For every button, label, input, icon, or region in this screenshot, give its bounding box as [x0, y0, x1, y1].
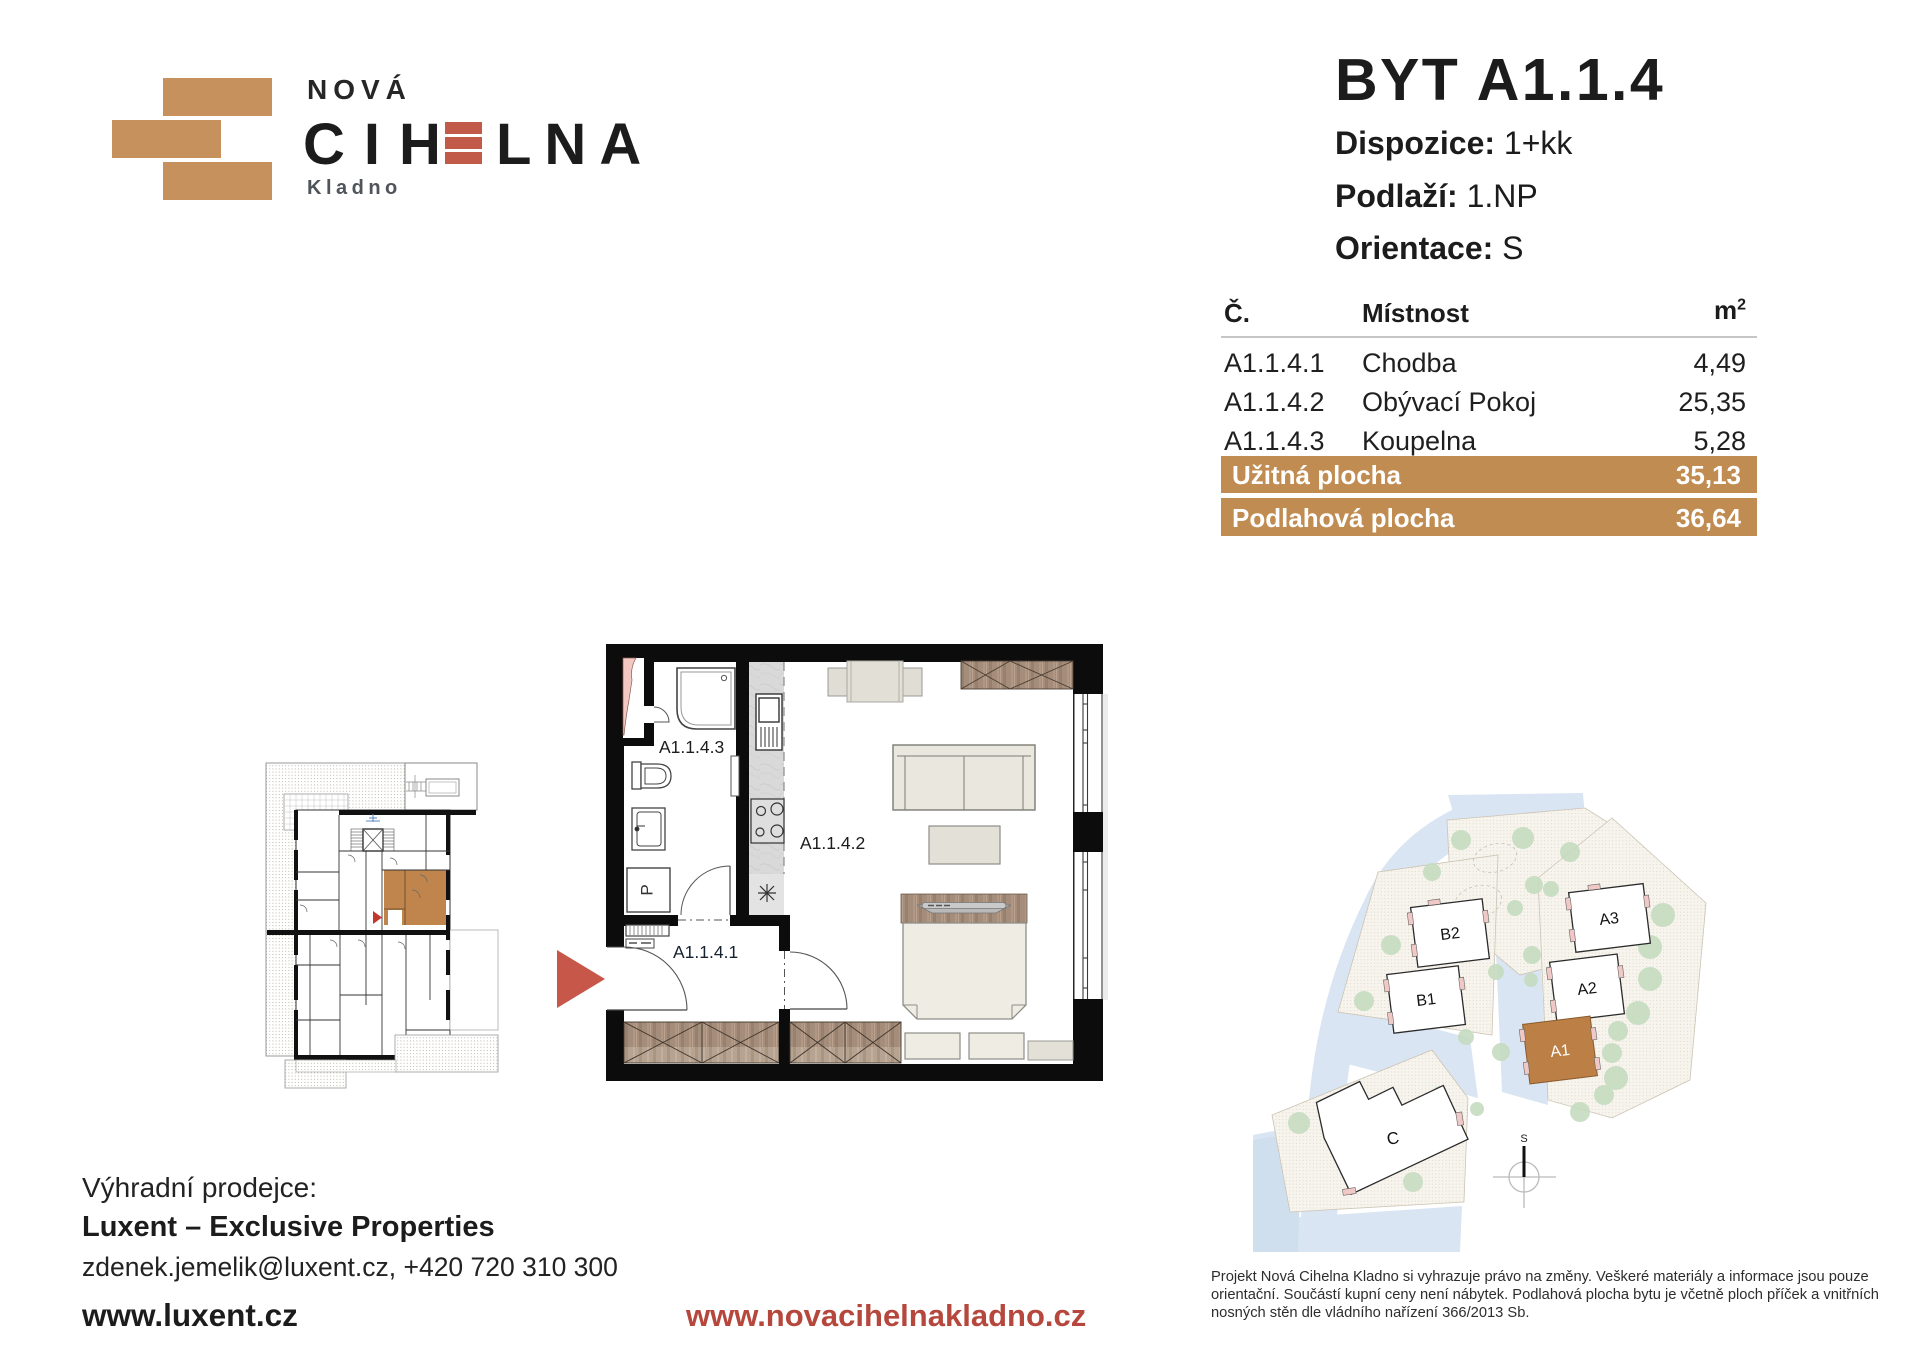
- svg-text:P: P: [637, 884, 656, 895]
- svg-text:A1.1.4.3: A1.1.4.3: [659, 737, 724, 757]
- svg-text:B1: B1: [1415, 991, 1437, 1010]
- svg-text:S: S: [1520, 1133, 1527, 1145]
- svg-text:A3: A3: [1598, 910, 1620, 929]
- svg-text:A1: A1: [1549, 1042, 1571, 1061]
- svg-text:B2: B2: [1439, 925, 1461, 944]
- svg-text:A1.1.4.1: A1.1.4.1: [673, 942, 738, 962]
- svg-text:A2: A2: [1576, 980, 1598, 999]
- svg-text:A1.1.4.2: A1.1.4.2: [800, 833, 865, 853]
